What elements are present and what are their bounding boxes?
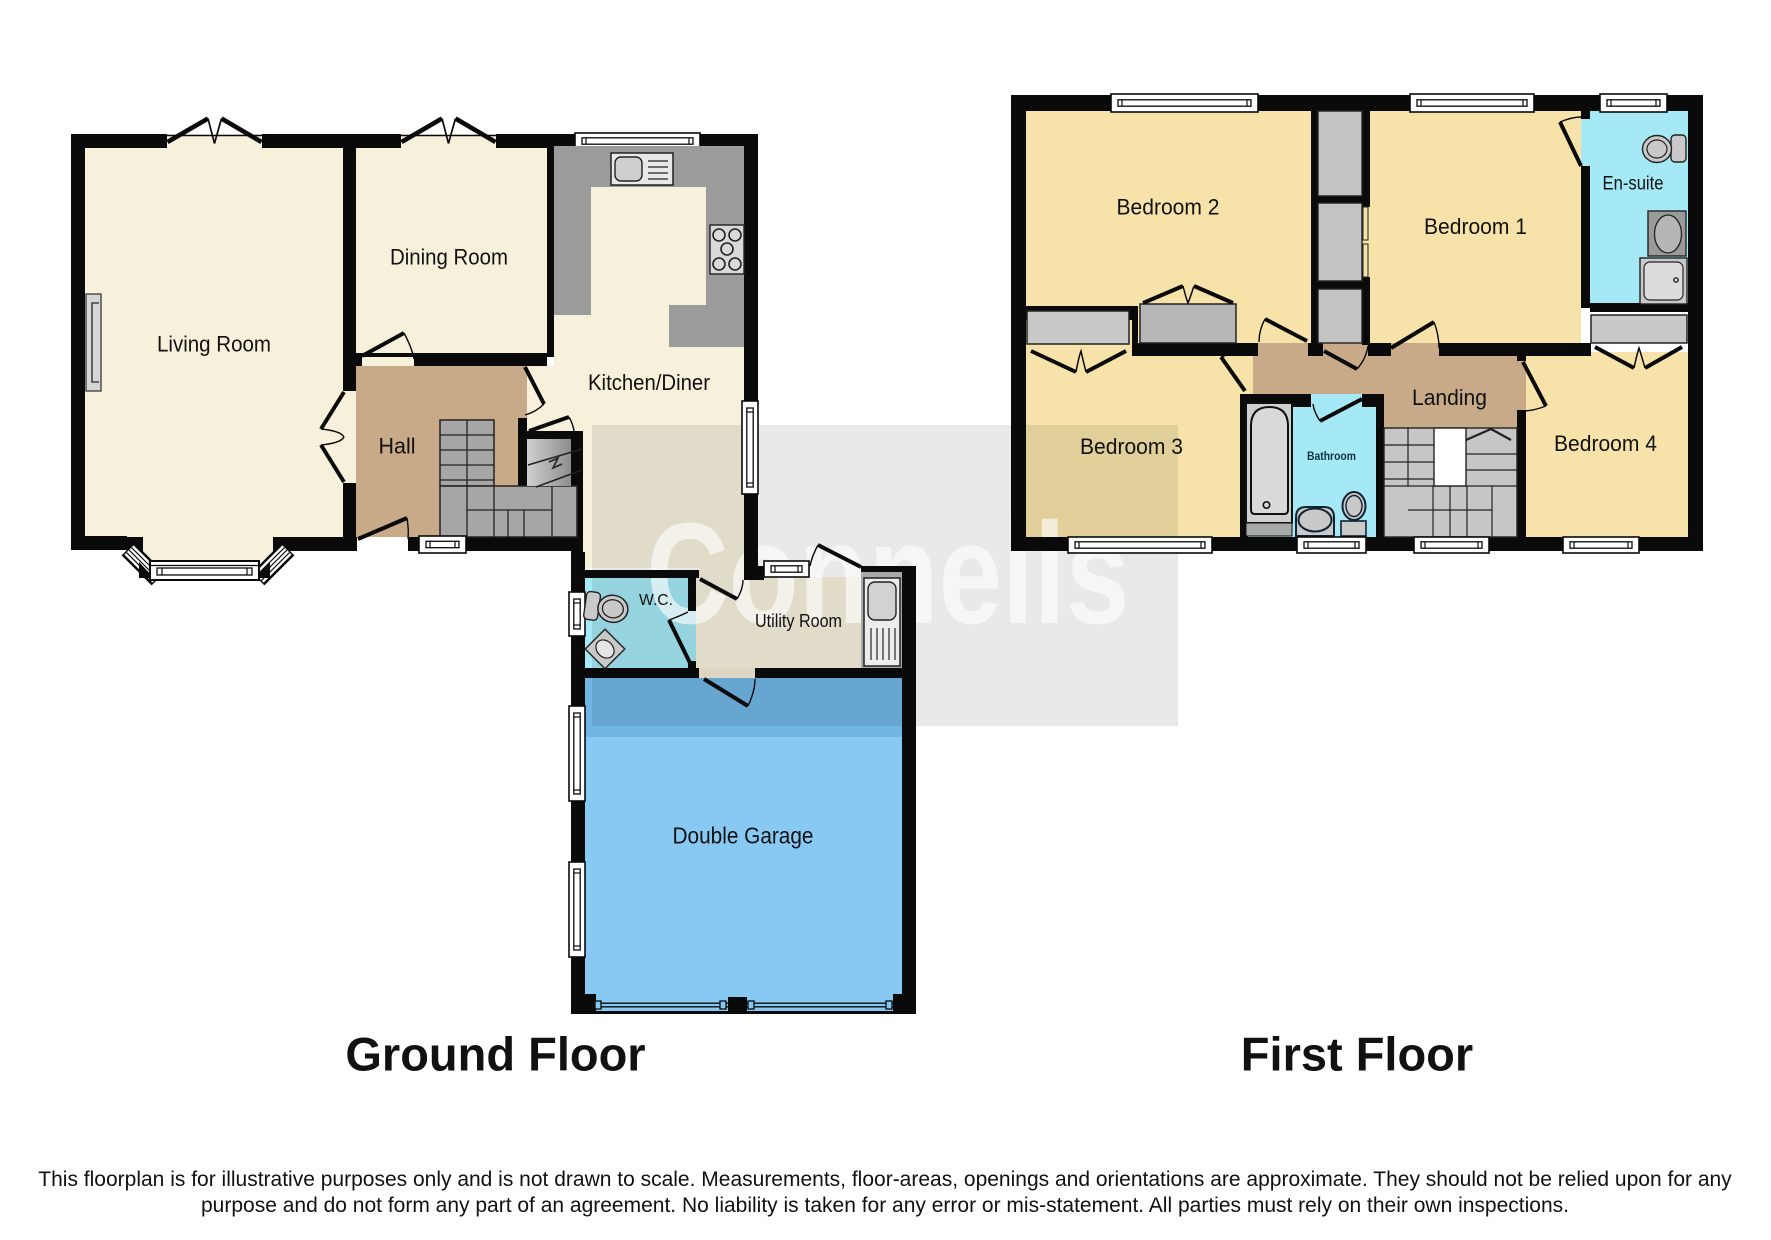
svg-text:Living Room: Living Room [157,332,271,357]
svg-text:Bedroom 3: Bedroom 3 [1080,434,1183,459]
svg-text:This floorplan is for illustra: This floorplan is for illustrative purpo… [38,1168,1732,1191]
svg-text:Bedroom 1: Bedroom 1 [1424,214,1527,239]
svg-text:W.C.: W.C. [639,592,673,609]
svg-text:Bathroom: Bathroom [1307,449,1356,463]
svg-text:Dining Room: Dining Room [390,245,508,270]
svg-text:Ground Floor: Ground Floor [345,1028,645,1081]
svg-text:Utility Room: Utility Room [755,611,842,631]
svg-text:Kitchen/Diner: Kitchen/Diner [588,370,710,395]
svg-text:First Floor: First Floor [1241,1028,1473,1081]
svg-text:Hall: Hall [379,434,416,459]
svg-text:En-suite: En-suite [1603,174,1664,195]
svg-text:Bedroom 2: Bedroom 2 [1117,195,1220,220]
svg-text:Bedroom 4: Bedroom 4 [1554,431,1657,456]
svg-text:purpose and do not form any pa: purpose and do not form any part of an a… [201,1194,1569,1217]
svg-text:Double Garage: Double Garage [673,823,814,849]
svg-text:Landing: Landing [1412,385,1487,410]
